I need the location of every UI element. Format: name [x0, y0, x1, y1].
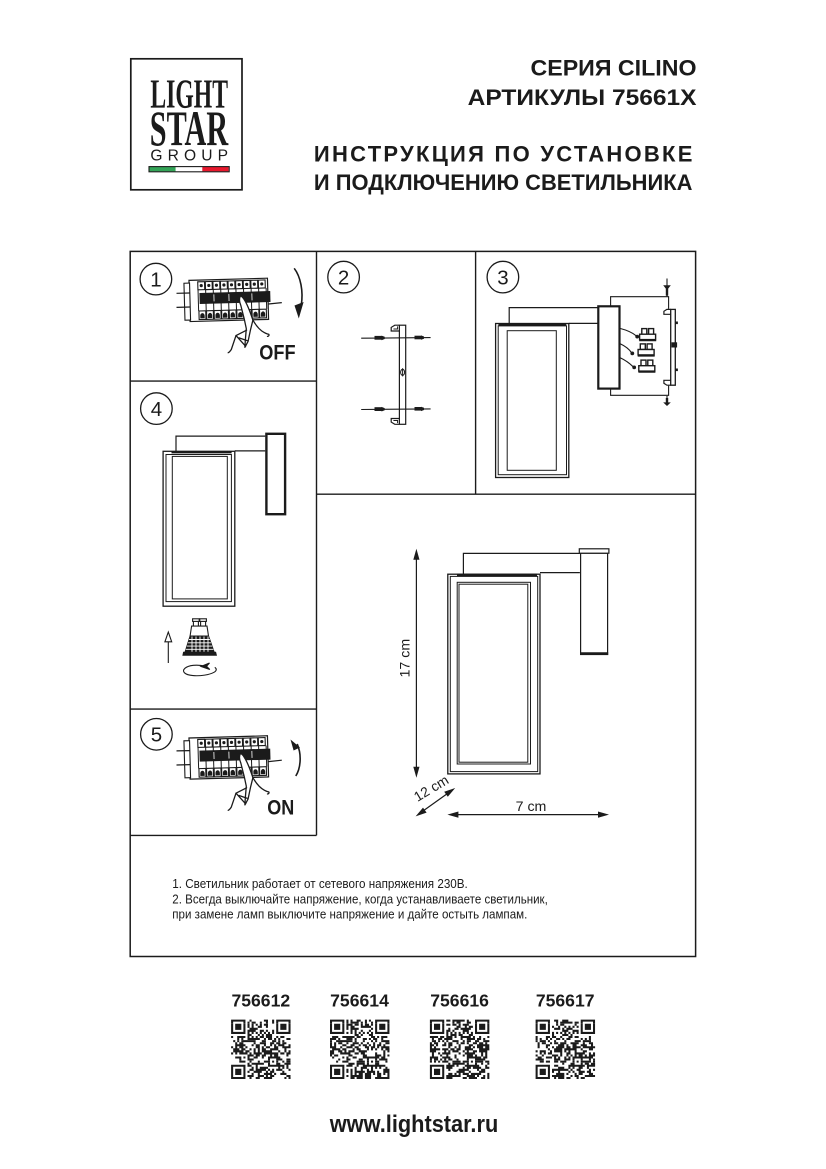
svg-text:ON: ON [267, 796, 294, 819]
svg-text:17 cm: 17 cm [398, 639, 414, 678]
svg-text:4: 4 [151, 398, 162, 421]
svg-text:ИНСТРУКЦИЯ ПО УСТАНОВКЕ: ИНСТРУКЦИЯ ПО УСТАНОВКЕ [314, 142, 693, 167]
svg-text:OFF: OFF [259, 341, 295, 364]
svg-text:756617: 756617 [536, 990, 595, 1010]
svg-text:1. Светильник работает от сете: 1. Светильник работает от сетевого напря… [172, 876, 468, 891]
svg-text:И ПОДКЛЮЧЕНИЮ СВЕТИЛЬНИКА: И ПОДКЛЮЧЕНИЮ СВЕТИЛЬНИКА [314, 170, 693, 195]
svg-text:756614: 756614 [330, 990, 389, 1010]
svg-text:АРТИКУЛЫ 75661X: АРТИКУЛЫ 75661X [468, 85, 697, 110]
svg-text:www.lightstar.ru: www.lightstar.ru [329, 1111, 498, 1138]
svg-text:756616: 756616 [430, 990, 489, 1010]
svg-text:7 cm: 7 cm [516, 799, 547, 815]
svg-text:1: 1 [150, 268, 161, 291]
svg-text:3: 3 [497, 266, 508, 289]
svg-text:2: 2 [338, 266, 349, 289]
svg-text:756612: 756612 [231, 990, 290, 1010]
svg-text:СЕРИЯ CILINO: СЕРИЯ CILINO [531, 56, 697, 81]
svg-text:при замене ламп выключите напр: при замене ламп выключите напряжение и д… [172, 907, 527, 922]
svg-text:2. Всегда выключайте напряжени: 2. Всегда выключайте напряжение, когда у… [172, 891, 548, 906]
svg-text:5: 5 [151, 724, 162, 747]
